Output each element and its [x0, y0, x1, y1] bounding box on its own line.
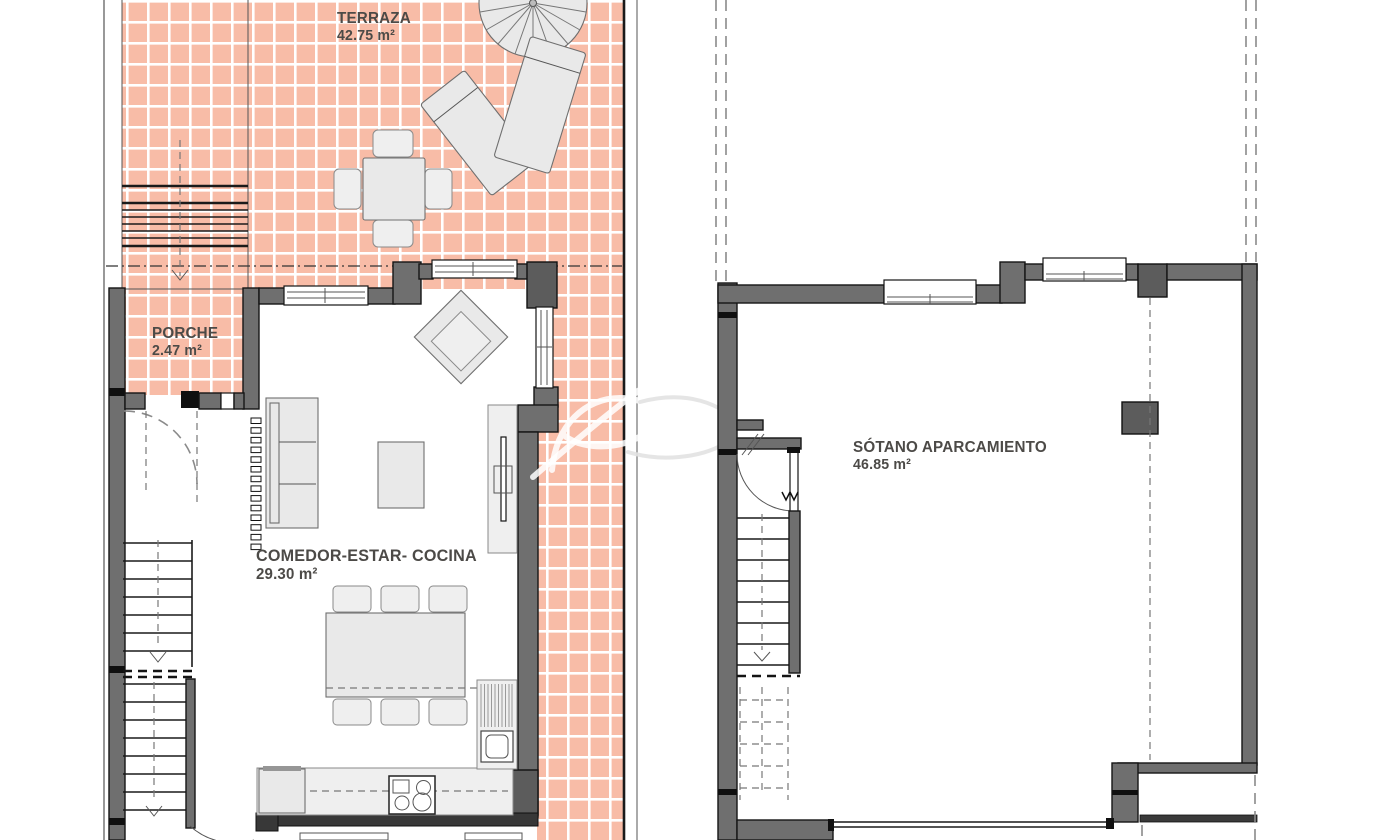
- entrance-door: [124, 411, 197, 502]
- window: [284, 286, 368, 305]
- room-area: 42.75 m²: [337, 28, 411, 44]
- room-label-comedor-estar-cocina: COMEDOR-ESTAR- COCINA 29.30 m²: [256, 547, 477, 583]
- interior-stairs: [123, 540, 195, 828]
- sofa: [266, 398, 318, 528]
- stove: [389, 776, 435, 814]
- window: [884, 280, 976, 304]
- room-label-porche: PORCHE 2.47 m²: [152, 325, 218, 359]
- sink: [481, 731, 513, 762]
- armchair: [414, 290, 507, 383]
- tv-cabinet: [488, 405, 517, 553]
- basement-door: [737, 447, 800, 512]
- guide-lines: [1142, 298, 1255, 840]
- room-name: COMEDOR-ESTAR- COCINA: [256, 546, 477, 565]
- radiator: [251, 418, 261, 550]
- room-name: PORCHE: [152, 325, 218, 342]
- room-label-terraza: TERRAZA 42.75 m²: [337, 10, 411, 44]
- fridge: [259, 766, 305, 813]
- room-label-sotano-aparcamiento: SÓTANO APARCAMIENTO 46.85 m²: [853, 439, 1047, 473]
- room-area: 46.85 m²: [853, 457, 1047, 473]
- room-name: TERRAZA: [337, 10, 411, 27]
- room-name: SÓTANO APARCAMIENTO: [853, 439, 1047, 456]
- lower-floor-partial: [190, 826, 522, 840]
- floor-plan-page: TERRAZA 42.75 m² PORCHE 2.47 m² COMEDOR-…: [0, 0, 1390, 840]
- room-area: 29.30 m²: [256, 566, 477, 583]
- window: [432, 260, 517, 278]
- basement-stairs: [737, 511, 800, 800]
- room-area: 2.47 m²: [152, 343, 218, 359]
- floor-plan-drawing: [0, 0, 1390, 840]
- structural-column: [1122, 402, 1158, 434]
- window: [1043, 258, 1126, 281]
- window: [536, 307, 553, 388]
- coffee-table: [378, 442, 424, 508]
- garage-door: [828, 818, 1114, 831]
